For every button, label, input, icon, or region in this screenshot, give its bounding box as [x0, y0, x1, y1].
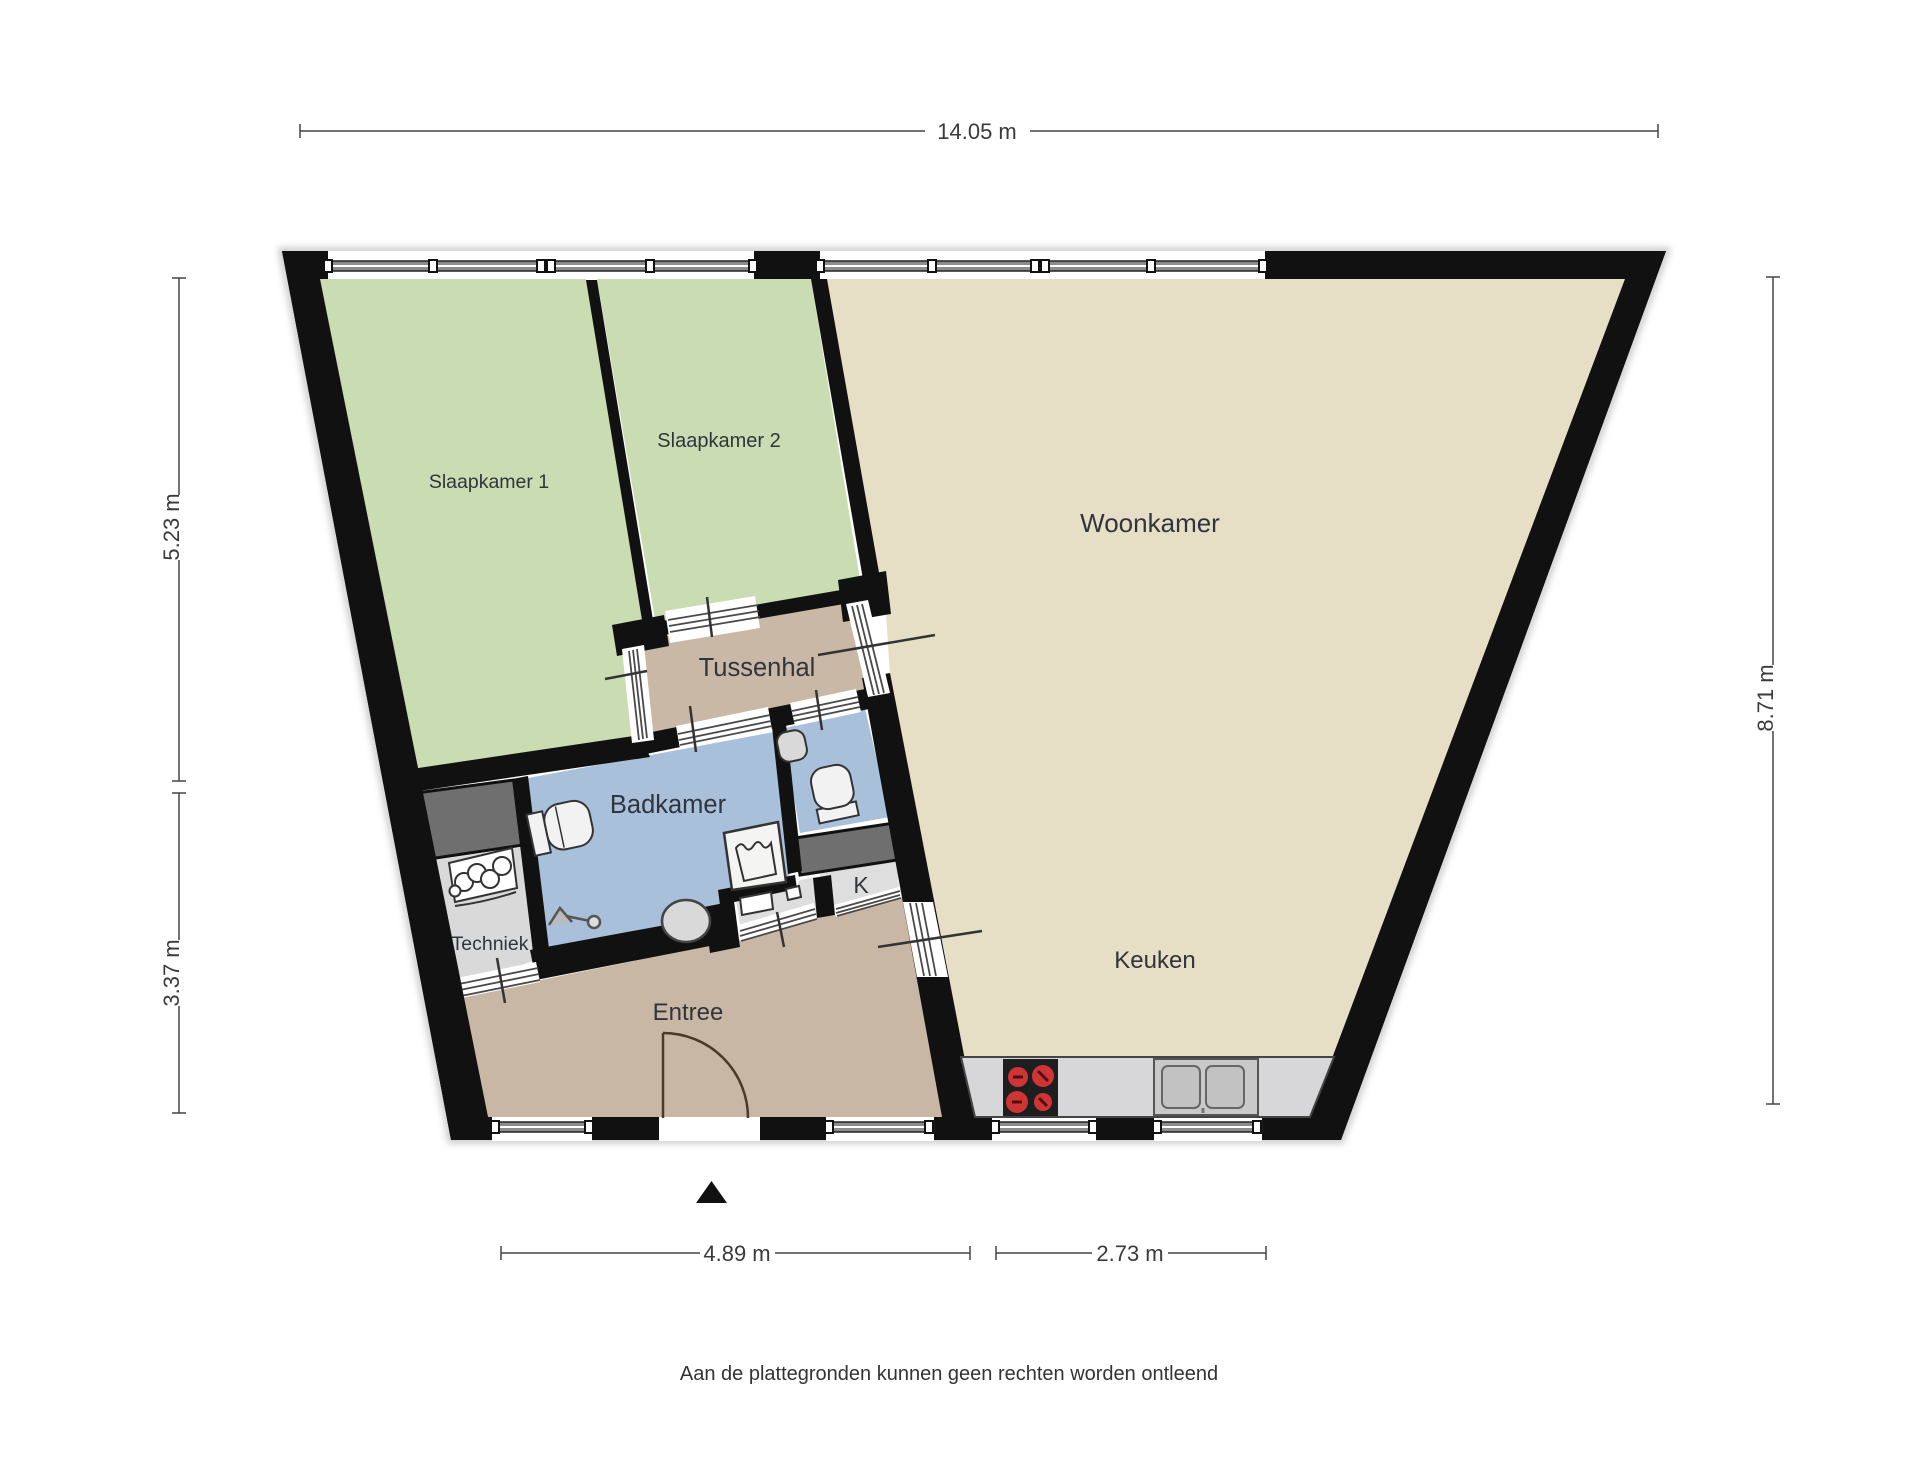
svg-text:Slaapkamer 2: Slaapkamer 2 [657, 430, 780, 452]
svg-text:2.73 m: 2.73 m [1096, 1241, 1163, 1266]
svg-text:Badkamer: Badkamer [610, 791, 727, 819]
svg-text:Techniek: Techniek [452, 933, 529, 955]
svg-text:8.71 m: 8.71 m [1753, 664, 1778, 731]
svg-text:Tussenhal: Tussenhal [699, 654, 816, 682]
svg-text:14.05 m: 14.05 m [937, 119, 1017, 144]
svg-text:5.23 m: 5.23 m [159, 493, 184, 560]
svg-text:Slaapkamer 1: Slaapkamer 1 [429, 471, 549, 493]
svg-text:Woonkamer: Woonkamer [1080, 508, 1220, 538]
svg-text:Entree: Entree [653, 999, 724, 1026]
svg-text:4.89 m: 4.89 m [703, 1241, 770, 1266]
svg-text:3.37 m: 3.37 m [159, 939, 184, 1006]
svg-text:Keuken: Keuken [1114, 947, 1195, 974]
svg-text:Aan de plattegronden kunnen ge: Aan de plattegronden kunnen geen rechten… [680, 1363, 1218, 1385]
svg-text:K: K [853, 872, 869, 898]
